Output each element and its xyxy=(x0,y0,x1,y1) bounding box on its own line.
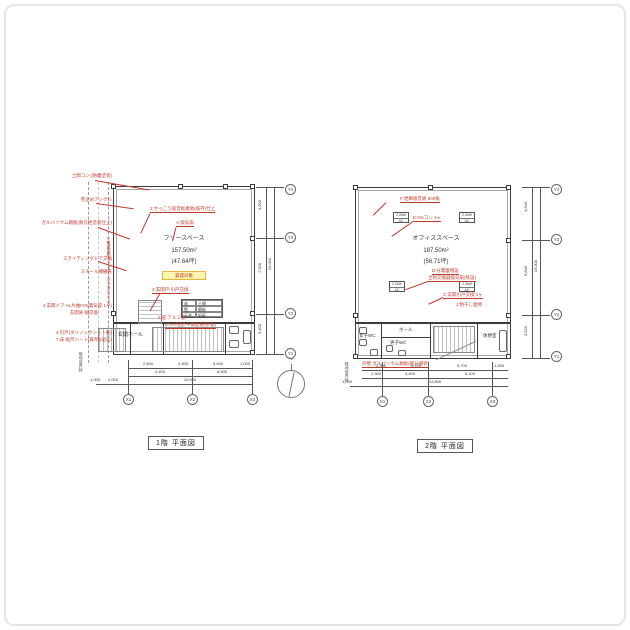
dim-label: 1,200 xyxy=(486,364,512,369)
dim-label: 4,700 xyxy=(402,364,430,369)
ac-type-label: AC xyxy=(390,287,404,293)
grid-bubble-x1: X1 xyxy=(377,396,388,407)
note-left: スライディングドア交換 xyxy=(28,256,112,261)
grid-tick xyxy=(256,354,284,355)
ac-unit: 2.2kWAC xyxy=(459,281,475,292)
grid-bubble-y3: Y3 xyxy=(551,234,562,245)
boundary-label: 隣地境界線 xyxy=(344,362,349,392)
dim-label: 3,400 xyxy=(258,324,263,334)
grid-bubble-y2: Y2 xyxy=(551,309,562,320)
interior-wall xyxy=(355,322,511,324)
entrance-label: 玄関ホール xyxy=(118,333,143,339)
grid-tick xyxy=(192,360,193,394)
dim-label: 6,500 xyxy=(208,370,236,375)
space-area: 157.50m² xyxy=(148,248,220,255)
dim-label: 5,700 xyxy=(448,364,476,369)
dim-total: 10,900 xyxy=(176,378,204,383)
note-left: 土間コン:(防塵塗装) xyxy=(28,173,112,178)
grid-bubble-y4: Y4 xyxy=(551,184,562,195)
room-label-wc-m: 男子WC xyxy=(390,340,407,345)
grid-tick xyxy=(252,360,253,394)
boundary-label: 隣地境界線 xyxy=(78,352,83,382)
dim-label: 4,600 xyxy=(258,200,263,210)
grid-tick xyxy=(522,187,550,188)
ac-unit: 2.2kWAC xyxy=(393,212,409,223)
interior-wall xyxy=(477,322,478,359)
ac-unit: 2.2kWAC xyxy=(459,212,475,223)
floorplan-sheet: { "page": {"frame_color": "#e6e6e6", "in… xyxy=(0,0,630,630)
sink-fixture xyxy=(398,350,406,356)
interior-wall xyxy=(381,337,430,338)
column xyxy=(506,185,511,190)
grid-tick xyxy=(492,362,493,396)
dim-label: 1,000 xyxy=(232,362,258,367)
dim-total: 15,000 xyxy=(534,260,539,272)
column xyxy=(506,354,511,359)
note-left: 4:玄関ドア:AL片袖FIX(電気錠 1ヶ) xyxy=(14,303,112,308)
toilet-fixture xyxy=(229,340,239,348)
dim-label: 4,400 xyxy=(396,372,424,377)
vent-note: 全熱交換器換気扇(移設) xyxy=(428,275,476,282)
column xyxy=(353,313,358,318)
stair-hatch xyxy=(433,326,475,353)
ceiling-note: F:岩綿吸音板 600角 xyxy=(400,196,440,203)
dim-label: 2,300 xyxy=(367,364,395,369)
toilet-fixture xyxy=(229,326,239,334)
panel-note: B:分電盤増設 xyxy=(432,268,459,275)
sink-fixture xyxy=(243,330,251,344)
grid-tick xyxy=(522,240,550,241)
toilet-fixture xyxy=(386,345,393,352)
grid-tick xyxy=(382,362,383,396)
hang-note: J:物干し金物 xyxy=(456,302,482,307)
column xyxy=(223,184,228,189)
space-area: 187.50m² xyxy=(400,248,472,255)
dim-label: 4,400 xyxy=(146,370,174,375)
dim-label: 2,000 xyxy=(108,378,118,383)
grid-bubble-x3: X3 xyxy=(247,394,258,405)
grid-tick xyxy=(256,187,284,188)
note-left: 玄関扉 総交換 xyxy=(14,310,98,315)
dim-line xyxy=(96,384,252,385)
lease-tag: 賃貸対象 xyxy=(162,271,206,280)
dim-total: 15,000 xyxy=(268,258,273,270)
column xyxy=(250,236,255,241)
dim-line xyxy=(362,370,508,371)
grid-tick xyxy=(522,358,550,359)
ac-power-label: 2.2kW xyxy=(460,282,474,287)
space-name: オフィススペース xyxy=(400,236,472,243)
space-tsubo: (56.71坪) xyxy=(400,259,472,266)
plan2-title: 2階 平面図 xyxy=(417,439,473,453)
grid-tick xyxy=(522,315,550,316)
ac-power-label: 2.2kW xyxy=(390,282,404,287)
column xyxy=(250,350,255,355)
column xyxy=(111,311,116,316)
interior-wall xyxy=(225,322,226,355)
column xyxy=(353,354,358,359)
note-left: スチール棚撤去 xyxy=(28,269,112,274)
column xyxy=(250,184,255,189)
interior-wall xyxy=(430,322,431,359)
grid-tick xyxy=(128,360,129,394)
note-left: 7:床:長尺シート(既存)(貼込) xyxy=(18,337,112,342)
finish-table: 床 土間 壁 鋼板 天井 折板 xyxy=(181,299,223,318)
note-left: ガルバリウム鋼板(耐久性塗装仕上) xyxy=(16,220,112,225)
dim-label: 2,600 xyxy=(134,362,162,367)
grid-tick xyxy=(256,314,284,315)
door-note: 3:玄関戸:引戸交換 xyxy=(152,287,189,294)
dim-label: 7,000 xyxy=(258,263,263,273)
grid-bubble-x3: X3 xyxy=(487,396,498,407)
canopy-note: 5:庇:アルミ庇 xyxy=(158,315,185,320)
grid-tick xyxy=(256,238,284,239)
dim-label: 3,520 xyxy=(524,326,529,336)
dim-line xyxy=(274,187,275,355)
room-label-rest: 休憩室 xyxy=(483,333,497,338)
grid-bubble-y3: Y3 xyxy=(285,232,296,243)
cabinet-fixture xyxy=(499,330,507,352)
ac-unit: 2.2kWAC xyxy=(389,281,405,292)
grid-tick xyxy=(428,362,429,396)
vent-note: A:換気扇 xyxy=(176,220,194,227)
dim-label: 2,300 xyxy=(362,372,390,377)
dim-line xyxy=(540,187,541,359)
dim-label: 6,100 xyxy=(456,372,484,377)
dim-total: 12,800 xyxy=(421,380,449,385)
column xyxy=(353,185,358,190)
plan1-title: 1階 平面図 xyxy=(148,436,204,450)
dim-label: 4,640 xyxy=(524,202,529,212)
dim-label: 6,840 xyxy=(524,266,529,276)
compass-stem xyxy=(291,364,292,371)
stair-hatch xyxy=(138,300,162,324)
column xyxy=(428,185,433,190)
ac-power-label: 2.2kW xyxy=(394,213,408,218)
room-label-wc-w: 女子WC xyxy=(359,333,376,338)
grid-bubble-y2: Y2 xyxy=(285,308,296,319)
grid-bubble-x1: X1 xyxy=(123,394,134,405)
finish-table-cell: 折板 xyxy=(196,312,222,318)
oa-note: E:OAコン 4ヶ xyxy=(413,215,441,222)
ceiling-note: 2:せっこう吸音板素地(既存)仕上 xyxy=(150,206,215,213)
dim-line xyxy=(266,187,267,355)
toilet-fixture xyxy=(359,339,367,346)
note-left: 雪止めアングル xyxy=(28,197,112,202)
grid-bubble-y1: Y1 xyxy=(551,351,562,362)
grid-bubble-y4: Y4 xyxy=(285,184,296,195)
column xyxy=(506,238,511,243)
grid-bubble-x2: X2 xyxy=(187,394,198,405)
dim-line xyxy=(350,386,508,387)
dim-label: 5,000 xyxy=(204,362,232,367)
space-tsubo: (47.64坪) xyxy=(148,259,220,266)
door-note: C:玄関引戸交換 1ヶ xyxy=(443,292,483,299)
dim-label: 1,000 xyxy=(90,378,100,383)
interior-wall xyxy=(381,322,382,359)
column xyxy=(506,313,511,318)
ac-type-label: AC xyxy=(460,218,474,224)
ac-power-label: 2.2kW xyxy=(460,213,474,218)
midroof-note: E:5%勾配 中間屋根(折板) xyxy=(165,322,216,329)
space-name: フリースペース xyxy=(148,236,220,243)
ac-type-label: AC xyxy=(394,218,408,224)
column xyxy=(178,184,183,189)
stair-hatch xyxy=(152,327,224,352)
toilet-fixture xyxy=(370,349,378,356)
column xyxy=(250,311,255,316)
north-label: N xyxy=(286,357,296,362)
note-left: 4:引戸(ダイノックシート貼) xyxy=(18,330,112,335)
dim-line xyxy=(128,368,252,369)
grid-bubble-x2: X2 xyxy=(423,396,434,407)
room-label-hall: ホール xyxy=(399,327,413,332)
dim-line xyxy=(532,187,533,359)
